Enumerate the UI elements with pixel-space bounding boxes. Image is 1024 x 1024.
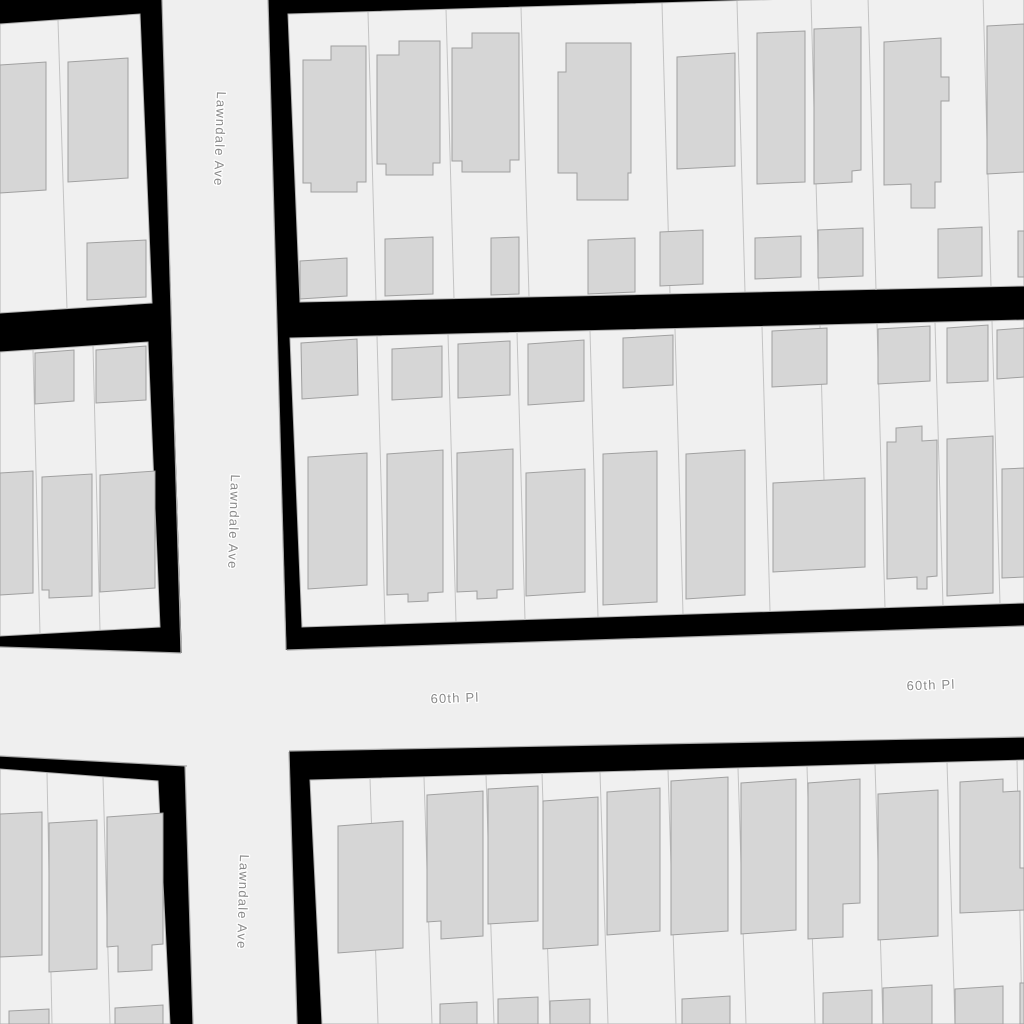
building-footprint — [526, 469, 585, 596]
building-footprint — [87, 240, 146, 300]
building-footprint — [878, 326, 930, 384]
building-footprint — [878, 790, 938, 940]
building-footprint — [488, 786, 538, 924]
building-footprint — [623, 335, 673, 388]
building-footprint — [385, 237, 433, 296]
building-footprint — [42, 474, 92, 598]
building-footprint — [68, 58, 128, 182]
building-footprint — [677, 53, 735, 169]
building-footprint — [1018, 231, 1024, 277]
building-footprint — [671, 777, 728, 935]
building-footprint — [9, 1009, 49, 1024]
building-footprint — [1002, 468, 1024, 578]
building-footprint — [392, 346, 442, 400]
building-footprint — [457, 449, 513, 599]
building-footprint — [115, 1005, 163, 1024]
building-footprint — [49, 820, 97, 972]
building-footprint — [0, 62, 46, 193]
building-footprint — [440, 1002, 477, 1024]
building-footprint — [528, 340, 584, 405]
street-surface-60th-pl — [0, 626, 1024, 766]
building-footprint — [0, 812, 42, 957]
building-footprint — [887, 426, 937, 589]
building-footprint — [755, 236, 801, 279]
building-footprint — [338, 821, 403, 953]
building-footprint — [377, 41, 440, 175]
building-footprint — [458, 341, 510, 398]
building-footprint — [300, 258, 347, 299]
building-footprint — [772, 328, 827, 387]
building-footprint — [947, 325, 988, 383]
building-footprint — [757, 31, 805, 184]
building-footprint — [491, 237, 519, 295]
building-footprint — [452, 33, 519, 172]
building-footprint — [814, 27, 861, 184]
street-name-label: Lawndale Ave — [225, 474, 243, 570]
building-footprint — [588, 238, 635, 294]
building-footprint — [1020, 983, 1024, 1024]
building-footprint — [773, 478, 865, 572]
building-footprint — [960, 779, 1024, 913]
building-footprint — [997, 328, 1024, 379]
building-footprint — [987, 24, 1024, 174]
building-footprint — [427, 791, 483, 939]
street-name-label: 60th Pl — [430, 690, 479, 707]
building-footprint — [823, 990, 872, 1024]
building-footprint — [308, 453, 367, 589]
building-footprint — [550, 999, 590, 1024]
building-footprint — [96, 346, 146, 403]
building-footprint — [498, 997, 538, 1024]
map-viewport[interactable]: Lawndale AveLawndale AveLawndale Ave60th… — [0, 0, 1024, 1024]
building-footprint — [884, 38, 949, 208]
parcel-map-canvas[interactable]: Lawndale AveLawndale AveLawndale Ave60th… — [0, 0, 1024, 1024]
building-footprint — [603, 451, 657, 605]
building-footprint — [303, 46, 366, 192]
building-footprint — [660, 230, 703, 286]
building-footprint — [301, 339, 358, 399]
building-footprint — [35, 350, 74, 404]
building-footprint — [387, 450, 443, 602]
building-footprint — [955, 986, 1003, 1024]
street-name-label: 60th Pl — [906, 677, 955, 694]
street-name-label: Lawndale Ave — [211, 91, 229, 187]
building-footprint — [0, 471, 33, 595]
building-footprint — [607, 788, 660, 935]
street-name-label: Lawndale Ave — [234, 854, 252, 950]
building-footprint — [686, 450, 745, 599]
building-footprint — [938, 227, 982, 278]
building-footprint — [682, 996, 730, 1024]
building-footprint — [947, 436, 993, 596]
building-footprint — [100, 471, 155, 592]
building-footprint — [883, 985, 932, 1024]
building-footprint — [543, 797, 598, 949]
building-footprint — [818, 228, 863, 278]
building-footprint — [741, 779, 796, 934]
